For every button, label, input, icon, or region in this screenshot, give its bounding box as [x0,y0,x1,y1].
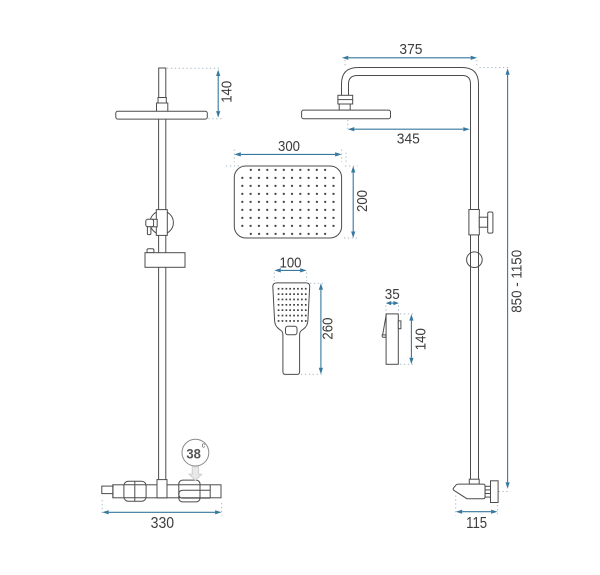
svg-text:300: 300 [278,138,300,155]
svg-text:35: 35 [385,286,400,303]
svg-text:345: 345 [397,131,420,148]
svg-text:c: c [202,443,206,450]
svg-text:200: 200 [354,190,371,212]
svg-text:115: 115 [466,515,487,532]
svg-text:330: 330 [151,515,175,532]
svg-text:38: 38 [186,445,201,461]
svg-text:140: 140 [412,328,429,350]
svg-text:100: 100 [280,255,302,272]
svg-text:140: 140 [219,81,236,103]
svg-text:375: 375 [399,41,422,58]
svg-text:260: 260 [319,318,336,340]
svg-text:850 - 1150: 850 - 1150 [510,250,526,313]
